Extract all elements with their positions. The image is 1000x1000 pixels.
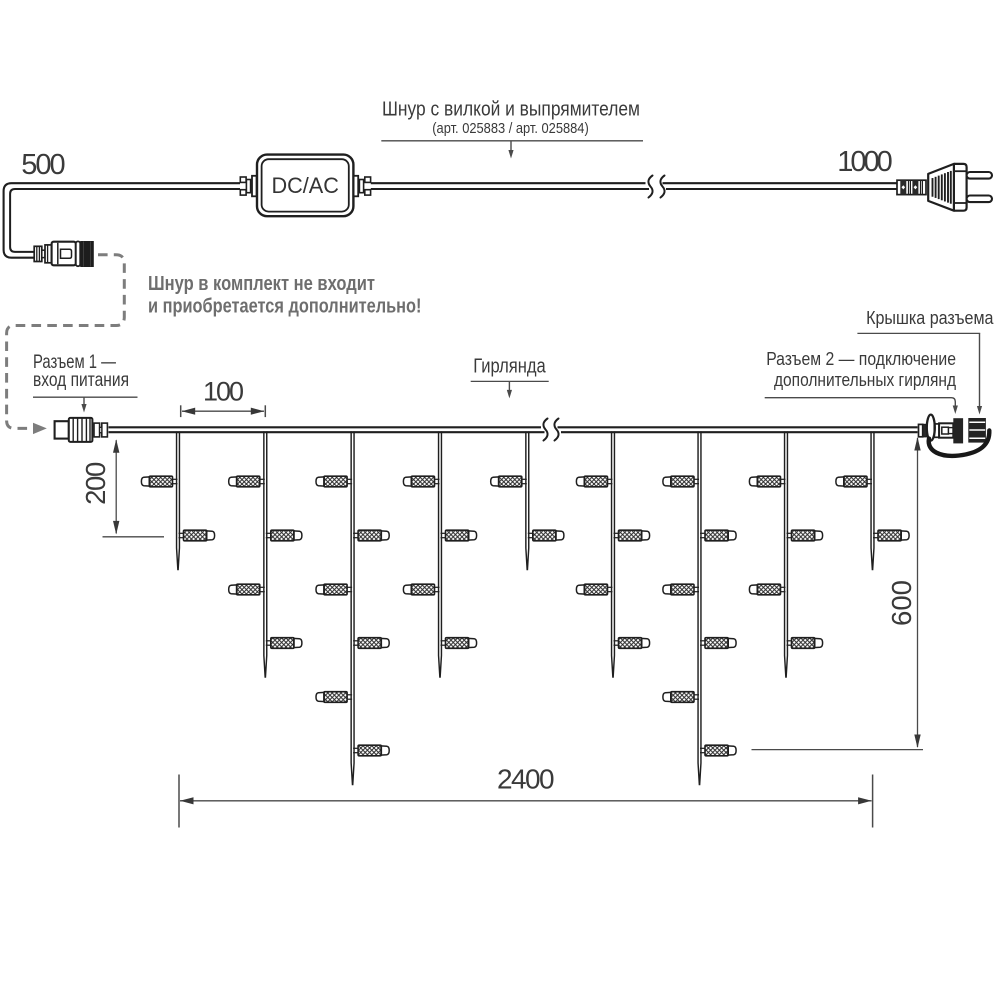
svg-text:100: 100 (203, 376, 243, 406)
svg-text:600: 600 (886, 580, 917, 626)
svg-text:Шнур с вилкой и выпрямителем: Шнур с вилкой и выпрямителем (382, 98, 640, 120)
svg-text:и приобретается дополнительно!: и приобретается дополнительно! (148, 295, 422, 318)
svg-text:дополнительных гирлянд: дополнительных гирлянд (774, 369, 956, 390)
svg-text:2400: 2400 (497, 764, 554, 795)
svg-text:200: 200 (80, 462, 111, 505)
svg-text:Крышка разъема: Крышка разъема (866, 307, 994, 328)
svg-text:(арт. 025883 / арт. 025884): (арт. 025883 / арт. 025884) (432, 121, 589, 137)
svg-text:вход питания: вход питания (33, 369, 129, 391)
svg-text:500: 500 (21, 149, 64, 181)
svg-text:Гирлянда: Гирлянда (473, 356, 546, 378)
svg-text:Разъем 2 — подключение: Разъем 2 — подключение (766, 348, 956, 369)
svg-text:DC/AC: DC/AC (271, 173, 339, 198)
svg-text:1000: 1000 (837, 146, 891, 178)
svg-text:Шнур в комплект не входит: Шнур в комплект не входит (148, 272, 375, 295)
